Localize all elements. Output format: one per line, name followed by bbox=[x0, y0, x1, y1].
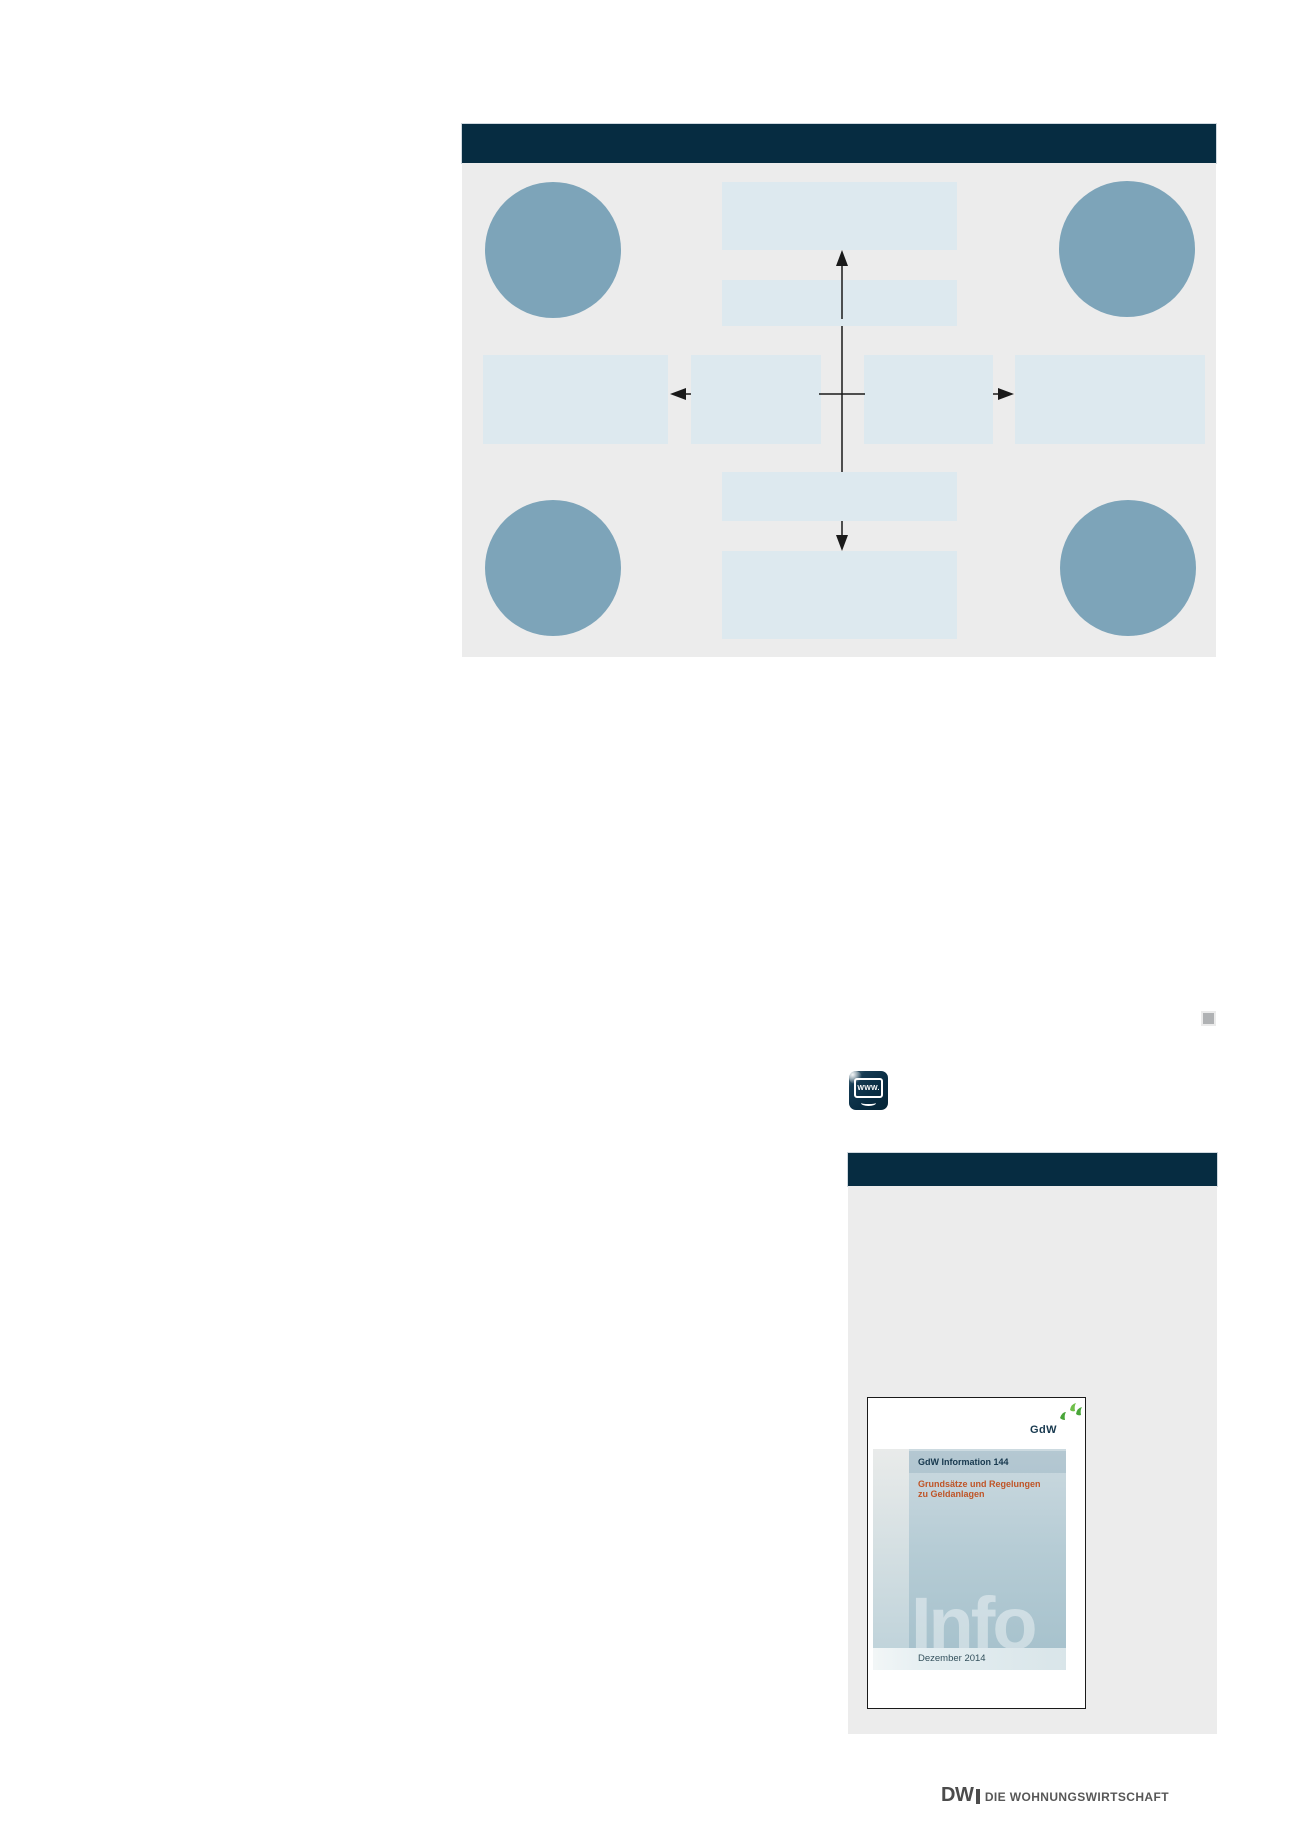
cover-print-area: Info GdW Information 144 Grundsätze und … bbox=[873, 1449, 1066, 1670]
cover-title-line2: zu Geldanlagen bbox=[918, 1489, 1041, 1499]
www-monitor-icon: WWW. bbox=[854, 1078, 883, 1098]
gdw-logo-text: GdW bbox=[1030, 1424, 1057, 1436]
diagram-arrows bbox=[462, 163, 1216, 657]
www-link-icon: WWW. bbox=[849, 1071, 888, 1110]
figure-body bbox=[462, 163, 1216, 657]
www-icon-label: WWW. bbox=[857, 1085, 879, 1092]
cover-left-strip bbox=[873, 1449, 909, 1670]
cover-series-band: GdW Information 144 bbox=[909, 1451, 1066, 1473]
magazine-footer: DW DIE WOHNUNGSWIRTSCHAFT bbox=[941, 1784, 1169, 1807]
www-monitor-stand bbox=[861, 1100, 876, 1106]
footer-brand-dw: DW bbox=[941, 1784, 973, 1807]
info-box: GdW Info GdW Information 144 Grundsätze … bbox=[848, 1153, 1217, 1734]
cover-title-line1: Grundsätze und Regelungen bbox=[918, 1479, 1041, 1489]
diagram-figure bbox=[462, 124, 1216, 657]
footer-separator bbox=[976, 1789, 980, 1804]
gdw-logo: GdW bbox=[1030, 1402, 1082, 1436]
footer-magazine-title: DIE WOHNUNGSWIRTSCHAFT bbox=[985, 1790, 1169, 1804]
end-of-article-marker bbox=[1201, 1011, 1216, 1026]
cover-date-band: Dezember 2014 bbox=[873, 1648, 1066, 1670]
cover-date: Dezember 2014 bbox=[873, 1648, 1066, 1670]
gdw-logo-mark-icon bbox=[1058, 1402, 1082, 1426]
cover-series-label: GdW Information 144 bbox=[909, 1451, 1066, 1473]
figure-header-bar bbox=[462, 124, 1216, 163]
cover-title: Grundsätze und Regelungen zu Geldanlagen bbox=[918, 1479, 1041, 1499]
gdw-brochure-cover: GdW Info GdW Information 144 Grundsätze … bbox=[867, 1397, 1086, 1709]
info-box-body: GdW Info GdW Information 144 Grundsätze … bbox=[848, 1186, 1217, 1734]
info-box-header-bar bbox=[848, 1153, 1217, 1186]
